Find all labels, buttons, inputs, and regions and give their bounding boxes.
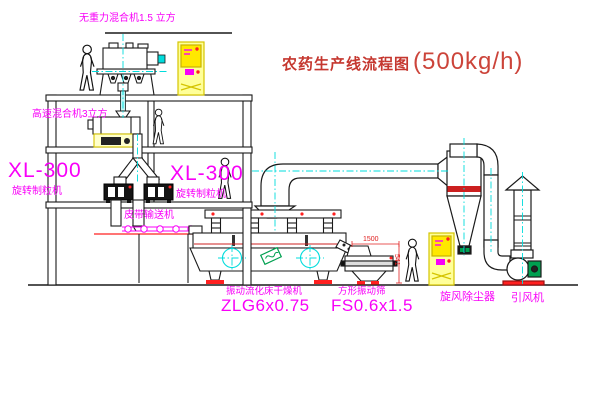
dryer-springs <box>212 218 333 233</box>
granulator-right <box>144 184 173 203</box>
title-capacity: (500kg/h) <box>413 48 523 76</box>
label-granulator-right-model: XL-300 <box>170 163 244 184</box>
induced-draft-fan <box>503 250 544 285</box>
person-icon <box>406 239 419 281</box>
label-belt-conveyor: 皮带输送机 <box>124 211 174 221</box>
label-sieve-model: FS0.6x1.5 <box>331 297 413 314</box>
label-granulator-right-name: 旋转制粒机 <box>176 190 226 200</box>
process-flow-diagram: 无重力混合机1.5 立方 农药生产线流程图 (500kg/h) 高速混合机3立方… <box>0 0 600 403</box>
belt-conveyor <box>94 226 199 283</box>
label-fan: 引风机 <box>511 293 544 304</box>
dimension-width-label: 1500 <box>363 236 379 243</box>
title-chinese: 农药生产线流程图 <box>282 53 410 74</box>
person-icon <box>153 109 164 144</box>
page-title: 农药生产线流程图 (500kg/h) <box>282 48 523 76</box>
label-high-speed-mixer: 高速混合机3立方 <box>32 110 108 120</box>
label-dryer-model: ZLG6x0.75 <box>221 297 310 314</box>
label-granulator-left-name: 旋转制粒机 <box>12 187 62 197</box>
fluid-bed-dryer <box>189 210 347 284</box>
label-cyclone: 旋风除尘器 <box>440 292 495 303</box>
fan-base <box>503 281 544 285</box>
square-vibrating-sieve <box>336 240 397 285</box>
control-cabinet-top <box>178 42 204 95</box>
cyclone-separator <box>447 144 510 270</box>
building-column-front <box>243 208 251 285</box>
dimension-height-label: 541 <box>393 254 400 266</box>
control-cabinet-cyclone <box>429 233 454 285</box>
gravity-free-mixer <box>97 43 165 118</box>
label-granulator-left-model: XL-300 <box>8 160 82 181</box>
exhaust-duct <box>255 155 450 218</box>
label-gravity-free-mixer: 无重力混合机1.5 立方 <box>79 14 176 24</box>
person-icon <box>80 45 94 90</box>
